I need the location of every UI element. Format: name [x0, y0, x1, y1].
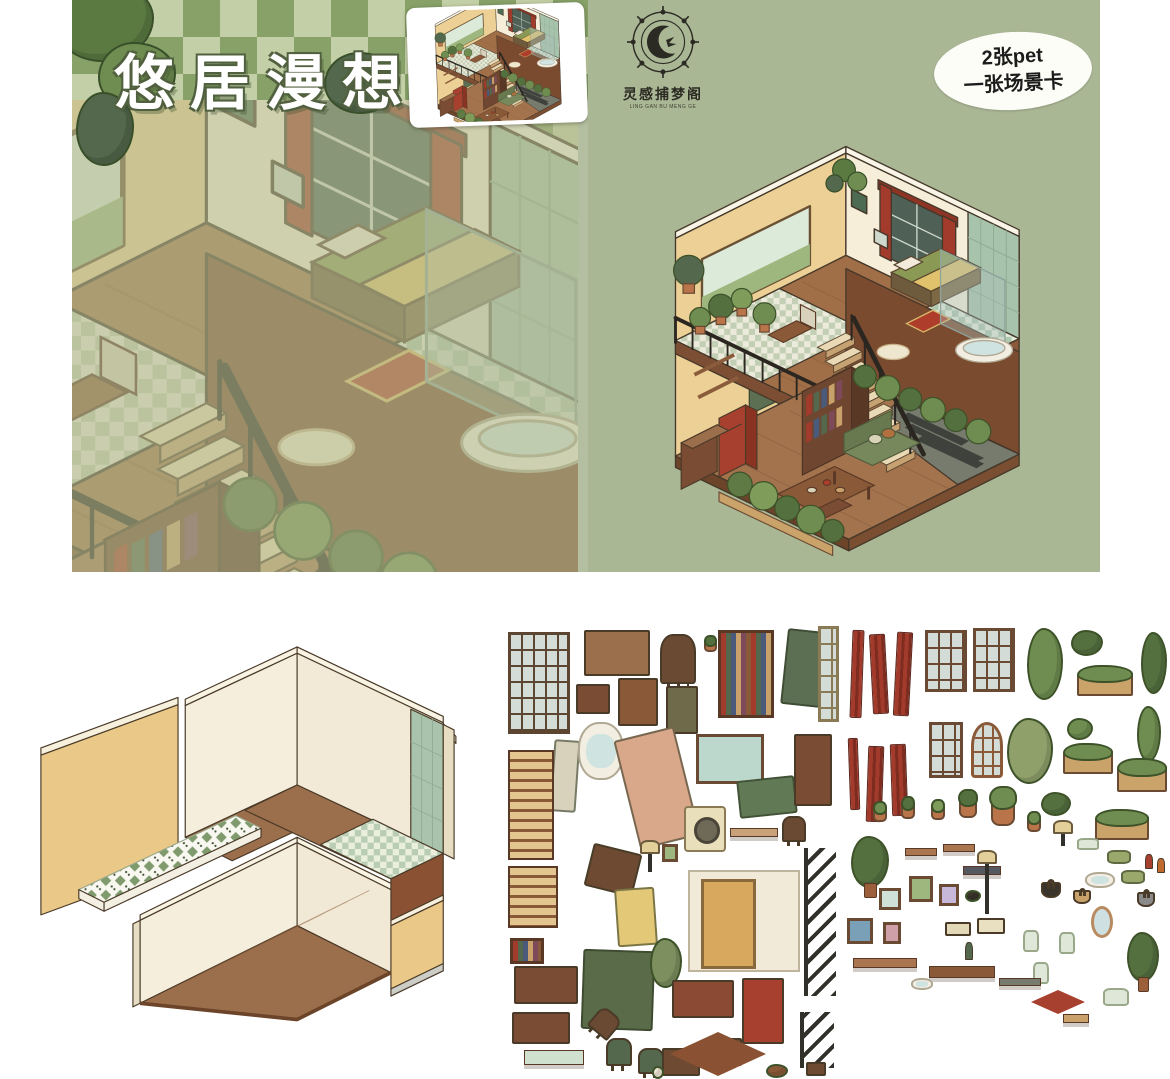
sticker-green-mattress [736, 775, 798, 819]
sticker-dark-shelf [963, 866, 1001, 875]
sticker-potted-plant [873, 808, 887, 822]
sticker-sauce-bottle [1145, 854, 1153, 869]
dollhouse-svg [598, 138, 1090, 564]
sticker-planter-box [1117, 768, 1167, 792]
sticker-wine-bottle [965, 942, 973, 960]
sticker-hanging-vine [1141, 632, 1167, 694]
sticker-basket-bag [1073, 890, 1091, 904]
sticker-mushroom-lamp [1061, 830, 1065, 846]
sticker-grid-window-small [929, 722, 963, 778]
sticker-planter-box [1095, 818, 1149, 840]
sticker-tray [1063, 1014, 1089, 1023]
sticker-sink-vanity [618, 678, 658, 726]
sticker-glass-jar [1023, 930, 1039, 952]
sticker-nightstand [576, 684, 610, 714]
sticker-oval-mirror [1091, 906, 1113, 938]
sticker-wardrobe [794, 734, 832, 806]
sticker-floral-sideboard [514, 966, 578, 1004]
room-template-svg [8, 628, 496, 1052]
sticker-book-stack [510, 938, 544, 964]
sticker-bookshelf [718, 630, 774, 718]
sticker-handbag [1041, 882, 1061, 898]
sticker-picture-frame [909, 876, 933, 902]
sticker-small-frame [662, 844, 678, 862]
sticker-ladder [800, 1012, 834, 1068]
sticker-picture-frame [883, 922, 901, 944]
sticker-potted-plant [704, 640, 717, 652]
sticker-handbag-2 [1137, 892, 1155, 907]
sticker-door-with-wall [688, 870, 800, 972]
sticker-tissue-box [977, 918, 1005, 934]
sticker-curtain-strip [869, 634, 889, 715]
sticker-cushion [1107, 850, 1131, 864]
brand-name-cn: 灵感捕梦阁 [598, 84, 728, 104]
sticker-vine-strand [1137, 706, 1161, 762]
sticker-pet-bed [1085, 872, 1115, 888]
sticker-landscape-picture [696, 734, 764, 784]
sticker-dining-chair [606, 1038, 632, 1066]
sticker-bush [1071, 630, 1103, 656]
sticker-hanging-vine [1027, 628, 1063, 700]
sticker-teddy-bear [766, 1064, 788, 1078]
sticker-shelf-plank [929, 966, 995, 978]
sticker-bunny [652, 1066, 664, 1079]
badge-line-1: 2张pet [981, 42, 1043, 72]
sticker-bush [1041, 792, 1071, 816]
sticker-planter-box [1063, 752, 1113, 774]
sticker-glass-jar [1059, 932, 1075, 954]
cover-thumbnail [406, 2, 588, 128]
sticker-frosted-window [508, 632, 570, 734]
sticker-quilt [614, 887, 658, 948]
sticker-cat-silhouette [965, 890, 981, 902]
sticker-cushion [1121, 870, 1145, 884]
sticker-refrigerator [742, 978, 784, 1044]
sticker-staircase-small [508, 866, 558, 928]
brand-logo: 灵感捕梦阁 LING GAN BU MENG GE [598, 6, 728, 110]
sticker-hanging-pot [1027, 818, 1041, 832]
sticker-stair-railing [804, 848, 836, 996]
sticker-grid-window [925, 630, 967, 692]
empty-room-template [8, 628, 496, 1052]
sticker-sheet-furniture [500, 622, 840, 1079]
sticker-wall-shelf [730, 828, 778, 837]
sticker-wall-shelf [905, 848, 937, 856]
sticker-mosaic-panel [818, 626, 839, 722]
sticker-standing-mirror [550, 739, 581, 813]
sticker-grid-window [973, 628, 1015, 692]
sticker-potted-plant [901, 804, 915, 819]
sticker-picture-frame [847, 918, 873, 944]
sticker-armchair [782, 816, 806, 842]
cover-thumbnail-image [410, 6, 584, 124]
cover-edge-strip [578, 100, 588, 572]
back-cover-panel: 灵感捕梦阁 LING GAN BU MENG GE 2张pet 一张场景卡 [588, 0, 1100, 572]
sticker-tile-ledge [524, 1050, 584, 1065]
sticker-fruit-bowl [1077, 838, 1099, 850]
sticker-curtain-strip [849, 630, 864, 718]
sticker-table-lamp [648, 850, 652, 872]
sticker-sheet-plants-decor [845, 622, 1170, 1079]
sticker-floor-lamp [985, 860, 989, 914]
sticker-red-rug [1031, 990, 1085, 1014]
sticker-sun-hat [911, 978, 933, 990]
sticker-kitchen-counter [672, 980, 734, 1018]
cover-scene-tinted [72, 100, 578, 572]
sticker-bush [1067, 718, 1093, 740]
sticker-arched-window [971, 722, 1003, 778]
thumbnail-illustration [410, 6, 584, 124]
sticker-sauce-bottle [1157, 858, 1165, 873]
sticker-table-block [584, 630, 650, 676]
contents-badge: 2张pet 一张场景卡 [932, 28, 1094, 114]
sticker-stool [806, 1062, 826, 1076]
badge-line-2: 一张场景卡 [963, 68, 1064, 100]
sticker-tissue-box [945, 922, 971, 936]
cover-panel: 悠居漫想 [72, 0, 588, 572]
moon-compass-logo-icon [627, 6, 699, 78]
sticker-wall-shelf [943, 844, 975, 852]
sticker-planter-box [1077, 674, 1133, 696]
sticker-picture-frame [879, 888, 901, 910]
sticker-potted-tree [1127, 932, 1159, 982]
sticker-potted-plant [931, 806, 945, 820]
brand-name-en: LING GAN BU MENG GE [598, 104, 728, 110]
sticker-picture-frame [939, 884, 959, 906]
green-wash-overlay-2 [72, 100, 578, 572]
sticker-shelf-plank [999, 978, 1041, 986]
sticker-rocking-chair [660, 634, 696, 684]
sticker-shelf-plank [853, 958, 917, 968]
sticker-air-conditioner [684, 806, 726, 852]
sticker-storage-basket [1103, 988, 1129, 1006]
sticker-potted-plant-large [991, 802, 1015, 826]
product-collage: 悠居漫想 [0, 0, 1170, 1079]
sticker-curtain-strip [893, 632, 913, 717]
sticker-staircase [508, 750, 554, 860]
dollhouse-illustration [598, 138, 1090, 564]
sticker-potted-plant [959, 800, 977, 818]
sticker-tall-plant [851, 836, 889, 888]
sticker-curtain-strip [848, 738, 861, 810]
sticker-moss-clump [1007, 718, 1053, 784]
sticker-floral-sideboard-2 [512, 1012, 570, 1044]
